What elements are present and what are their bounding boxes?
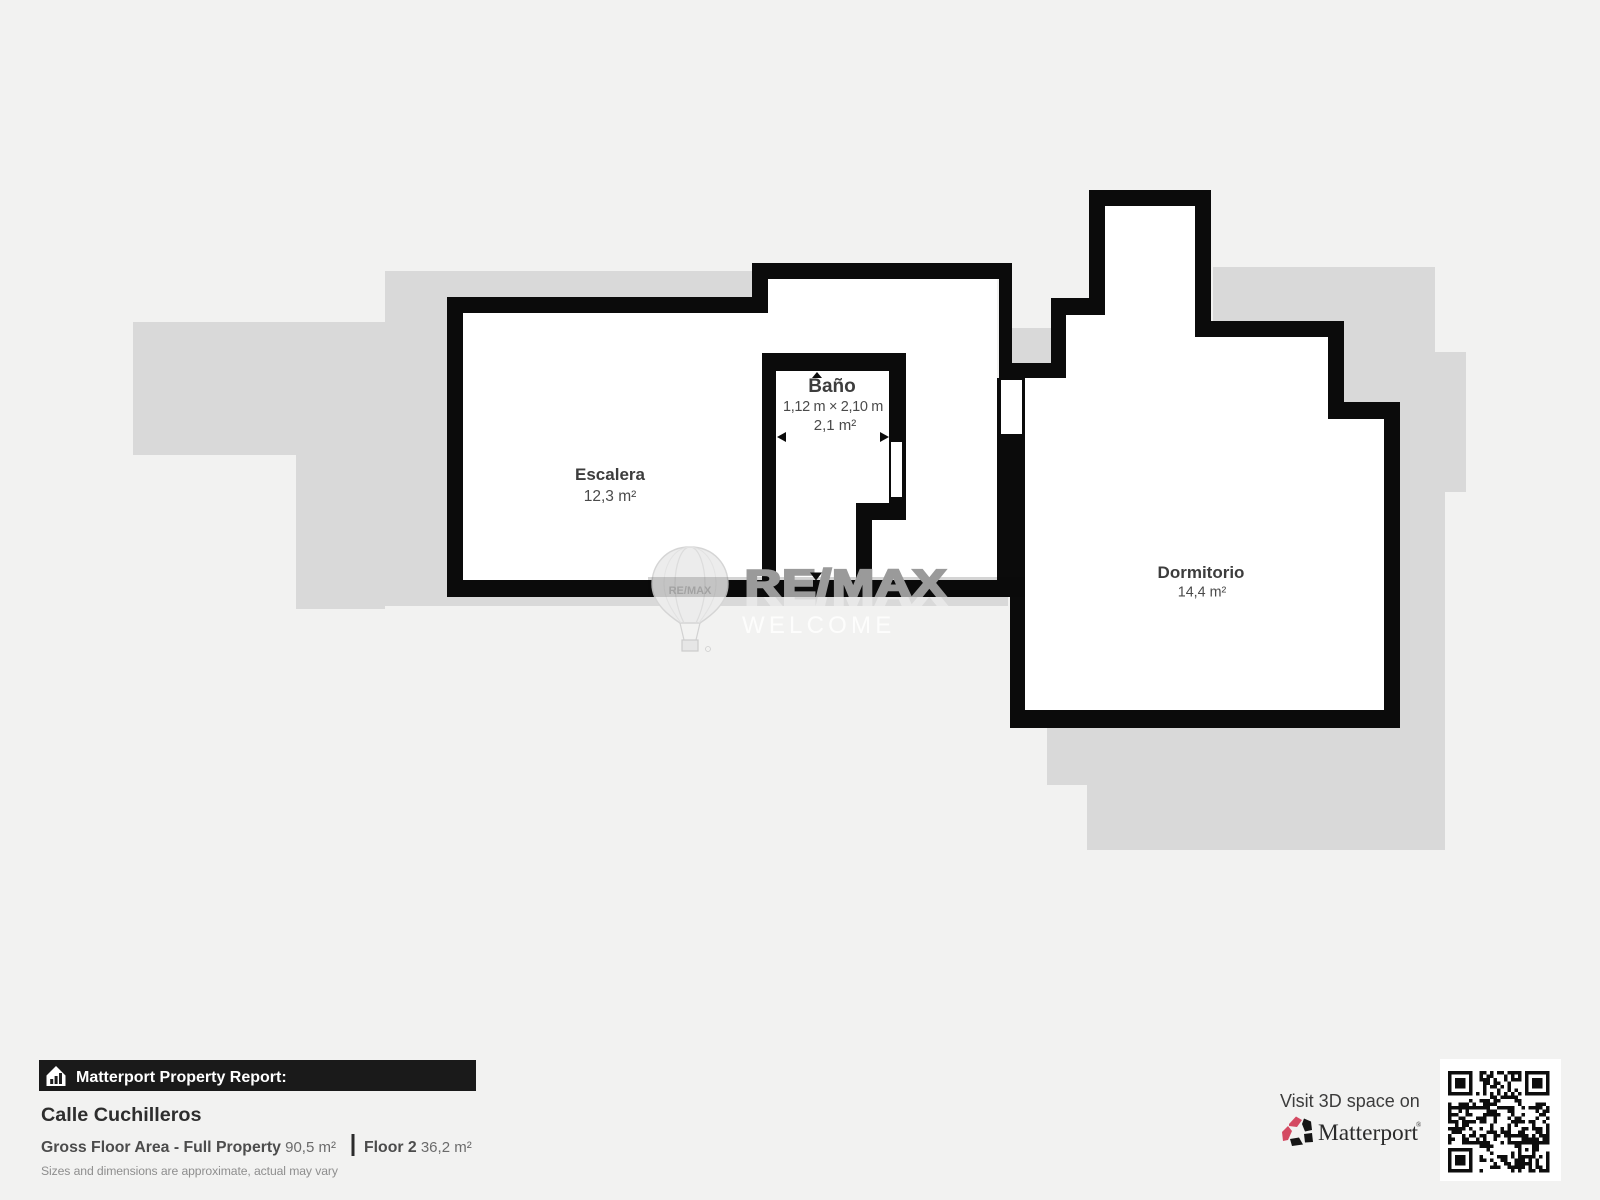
svg-text:12,3 m²: 12,3 m²: [584, 488, 637, 505]
svg-text:Sizes and dimensions are appro: Sizes and dimensions are approximate, ac…: [41, 1164, 339, 1178]
svg-text:Matterport Property Report:: Matterport Property Report:: [76, 1069, 287, 1086]
svg-text:Dormitorio: Dormitorio: [1158, 563, 1245, 582]
svg-text:Floor 2 36,2 m²: Floor 2 36,2 m²: [364, 1139, 472, 1156]
svg-text:14,4 m²: 14,4 m²: [1178, 585, 1227, 601]
svg-text:Escalera: Escalera: [575, 465, 645, 484]
svg-text:®: ®: [1416, 1121, 1422, 1129]
svg-text:RE/MAX: RE/MAX: [669, 585, 712, 597]
svg-text:1,12 m × 2,10 m: 1,12 m × 2,10 m: [783, 399, 883, 415]
svg-text:2,1 m²: 2,1 m²: [814, 417, 857, 434]
svg-text:Visit 3D space on: Visit 3D space on: [1280, 1091, 1420, 1111]
svg-text:Baño: Baño: [808, 376, 856, 397]
svg-text:Matterport: Matterport: [1318, 1120, 1419, 1146]
svg-text:WELCOME: WELCOME: [742, 612, 895, 639]
svg-text:Calle Cuchilleros: Calle Cuchilleros: [41, 1104, 202, 1126]
svg-text:Gross Floor Area - Full Proper: Gross Floor Area - Full Property 90,5 m²: [41, 1139, 336, 1156]
